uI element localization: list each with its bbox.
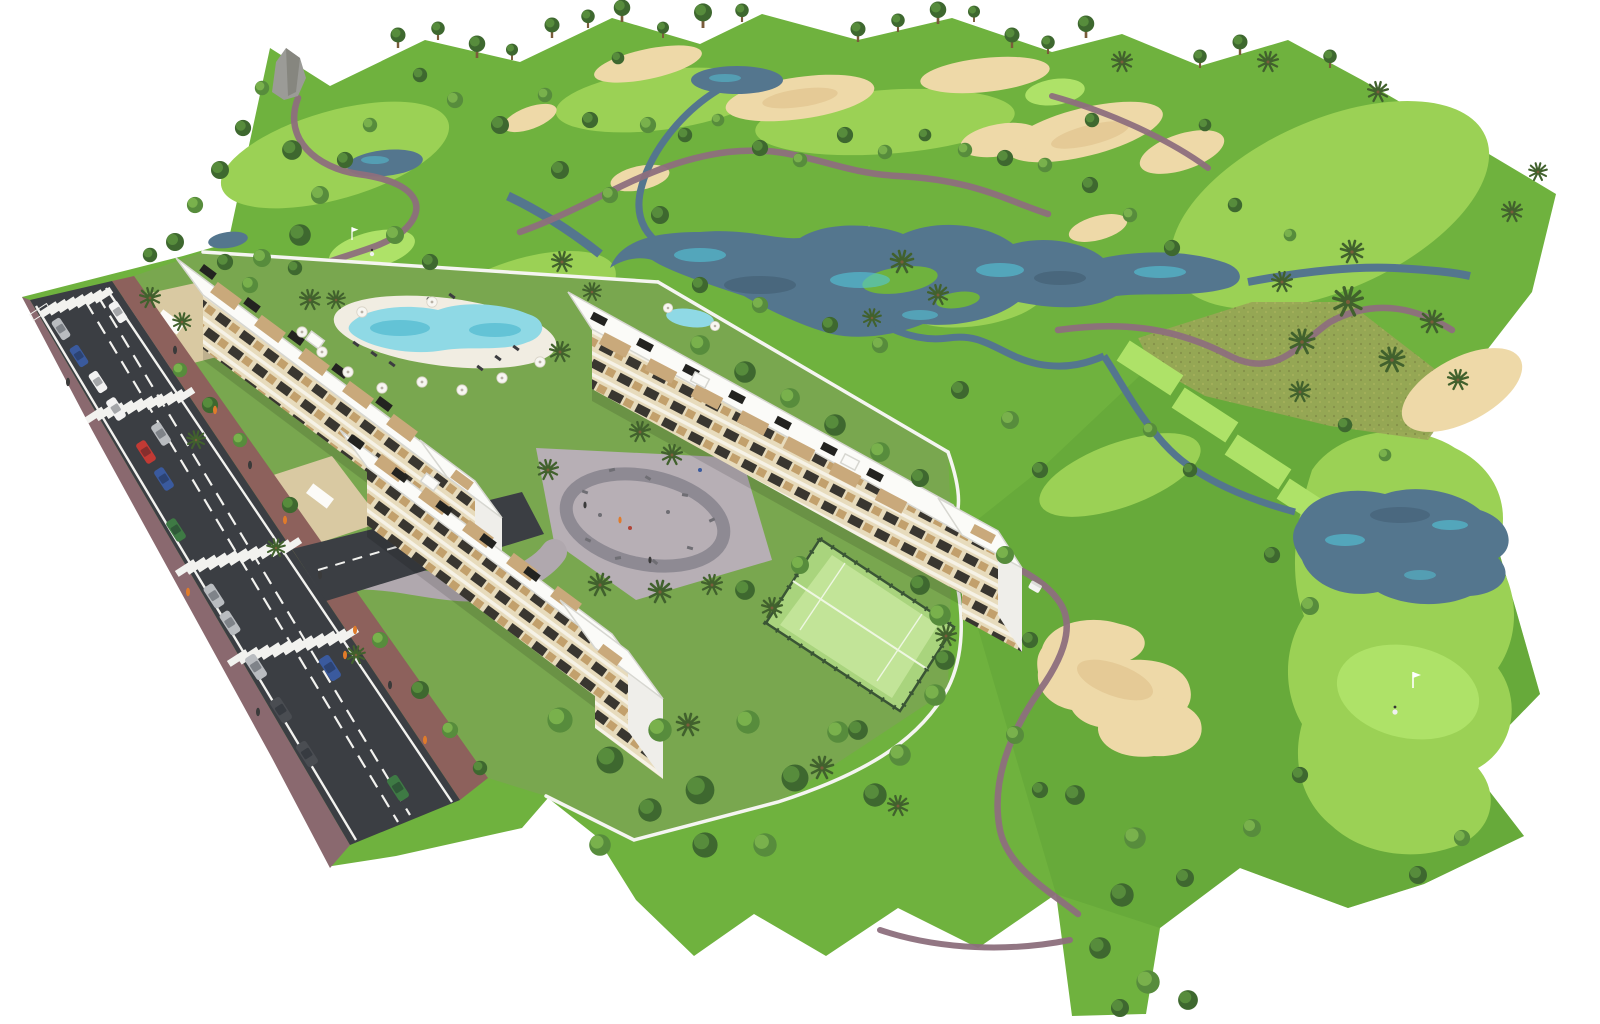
tree (782, 765, 809, 792)
pedestrian (283, 516, 287, 524)
pedestrian (213, 406, 217, 414)
tree (411, 681, 429, 699)
tree (1379, 449, 1392, 462)
gym-item (628, 526, 632, 530)
tree (289, 224, 311, 246)
pedestrian (388, 681, 392, 689)
tree (692, 832, 717, 857)
umbrella (417, 377, 427, 387)
tree (924, 684, 946, 706)
tree (848, 720, 868, 740)
pool-deep (370, 320, 430, 336)
tree (1124, 827, 1146, 849)
plaza-visitor (618, 517, 621, 524)
tree (753, 833, 776, 856)
horizon-tree (1078, 15, 1095, 38)
tree (582, 112, 598, 128)
umbrella (497, 373, 507, 383)
water-shadow (1034, 271, 1086, 285)
render-canvas: Golf resort apartment development — aeri… (0, 0, 1600, 1024)
water-shadow (1370, 507, 1430, 523)
tree (910, 575, 930, 595)
tree (242, 277, 258, 293)
tree (997, 150, 1013, 166)
tree (1199, 119, 1212, 132)
road-worker (343, 651, 347, 659)
tree (282, 140, 302, 160)
tree (1454, 830, 1470, 846)
tree (1228, 198, 1242, 212)
tree (491, 116, 509, 134)
tree (686, 776, 715, 805)
tree (1178, 990, 1198, 1010)
tree (870, 442, 890, 462)
gym-item (666, 510, 670, 514)
tree (143, 248, 157, 262)
gym-item (698, 468, 702, 472)
tree (889, 744, 911, 766)
tree (1301, 597, 1319, 615)
tree (692, 277, 708, 293)
tree (1409, 866, 1427, 884)
water-glint (1325, 534, 1365, 546)
water-glint (674, 248, 726, 262)
tree (1292, 767, 1308, 783)
tree (648, 718, 671, 741)
umbrella (663, 303, 672, 312)
tree (1111, 999, 1129, 1017)
tree (288, 261, 302, 275)
tree (1164, 240, 1180, 256)
tree (791, 556, 809, 574)
tree (878, 145, 892, 159)
horizon-tree (891, 14, 905, 32)
tree (1264, 547, 1280, 563)
tree (919, 129, 932, 142)
tree (827, 721, 849, 743)
tree (863, 783, 886, 806)
tree (1001, 411, 1019, 429)
pedestrian (353, 626, 357, 634)
horizon-tree (1233, 35, 1248, 56)
water-glint (1432, 520, 1468, 530)
gym-item (598, 513, 602, 517)
tree (173, 363, 187, 377)
umbrella (377, 383, 387, 393)
tree (1089, 937, 1111, 959)
tree (589, 834, 611, 856)
horizon-tree (506, 44, 518, 60)
pedestrian (256, 708, 260, 716)
tree (1338, 418, 1352, 432)
tree (638, 798, 661, 821)
tree (447, 92, 463, 108)
horizon-tree (694, 3, 712, 28)
tree (935, 650, 955, 670)
tree (473, 761, 487, 775)
tree (752, 140, 768, 156)
tree (602, 187, 618, 203)
tree (547, 707, 572, 732)
tree (166, 233, 184, 251)
tree (337, 152, 353, 168)
horizon-tree (614, 0, 631, 22)
plaza-visitor (648, 557, 651, 564)
tree (422, 254, 438, 270)
horizon-tree (391, 28, 406, 49)
water-glint (361, 156, 389, 164)
pedestrian (66, 378, 70, 386)
tree (1022, 632, 1038, 648)
tree (187, 197, 203, 213)
umbrella (710, 321, 719, 330)
tree (734, 361, 756, 383)
tree (690, 335, 710, 355)
tree (386, 226, 404, 244)
tree (211, 161, 229, 179)
tree (372, 632, 388, 648)
tree (1082, 177, 1098, 193)
tree (1032, 462, 1048, 478)
tree (1284, 229, 1297, 242)
aerial-render: Golf resort apartment development — aeri… (0, 0, 1600, 1024)
tree (1085, 113, 1099, 127)
tree (793, 153, 807, 167)
tree (538, 88, 552, 102)
horizon-tree (581, 10, 595, 28)
water-glint (902, 310, 938, 320)
tree (413, 68, 427, 82)
pedestrian (248, 461, 252, 469)
pedestrian (318, 571, 322, 579)
plaza-visitor (583, 502, 586, 509)
pedestrian (173, 346, 177, 354)
horizon-tree (968, 6, 980, 22)
tree (958, 143, 972, 157)
tree (363, 118, 377, 132)
tree (712, 114, 725, 127)
water-glint (830, 272, 890, 288)
tree (311, 186, 329, 204)
tree (678, 128, 692, 142)
horizon-tree (431, 22, 445, 40)
water-glint (1404, 570, 1436, 580)
umbrella (427, 297, 437, 307)
water-glint (709, 74, 741, 82)
tree (1032, 782, 1048, 798)
tree (551, 161, 569, 179)
tree (442, 722, 458, 738)
tree (911, 469, 929, 487)
umbrella (343, 367, 353, 377)
tree (837, 127, 853, 143)
tree (1123, 208, 1137, 222)
tree (255, 81, 269, 95)
tree (824, 414, 846, 436)
tree (651, 206, 669, 224)
tree (996, 546, 1014, 564)
pedestrian (186, 588, 190, 596)
tree (217, 254, 233, 270)
tree (1006, 726, 1024, 744)
tree (612, 52, 625, 65)
umbrella (457, 385, 467, 395)
tree (282, 497, 298, 513)
tree (235, 120, 251, 136)
tree (951, 381, 969, 399)
water-glint (976, 263, 1024, 277)
tree (597, 747, 624, 774)
palm-tree (1529, 163, 1547, 180)
tree (1243, 819, 1261, 837)
tree (872, 337, 888, 353)
umbrella (357, 307, 367, 317)
tree (822, 317, 838, 333)
pedestrian (423, 736, 427, 744)
tree (929, 604, 951, 626)
tree (736, 710, 759, 733)
umbrella (535, 357, 545, 367)
tree (1065, 785, 1085, 805)
tree (780, 388, 800, 408)
tree (1038, 158, 1052, 172)
tree (1136, 970, 1159, 993)
tree (1110, 883, 1133, 906)
tree (640, 117, 656, 133)
horizon-tree (545, 18, 560, 39)
pool-deep (469, 323, 521, 337)
tree (752, 297, 768, 313)
horizon-tree (735, 4, 749, 22)
tree (233, 433, 247, 447)
tree (253, 249, 271, 267)
tree (735, 580, 755, 600)
tree (1183, 463, 1197, 477)
water-glint (1134, 266, 1186, 278)
umbrella (317, 347, 327, 357)
umbrella (297, 327, 307, 337)
water-shadow (724, 276, 796, 294)
tree (1143, 423, 1157, 437)
tree (1176, 869, 1194, 887)
